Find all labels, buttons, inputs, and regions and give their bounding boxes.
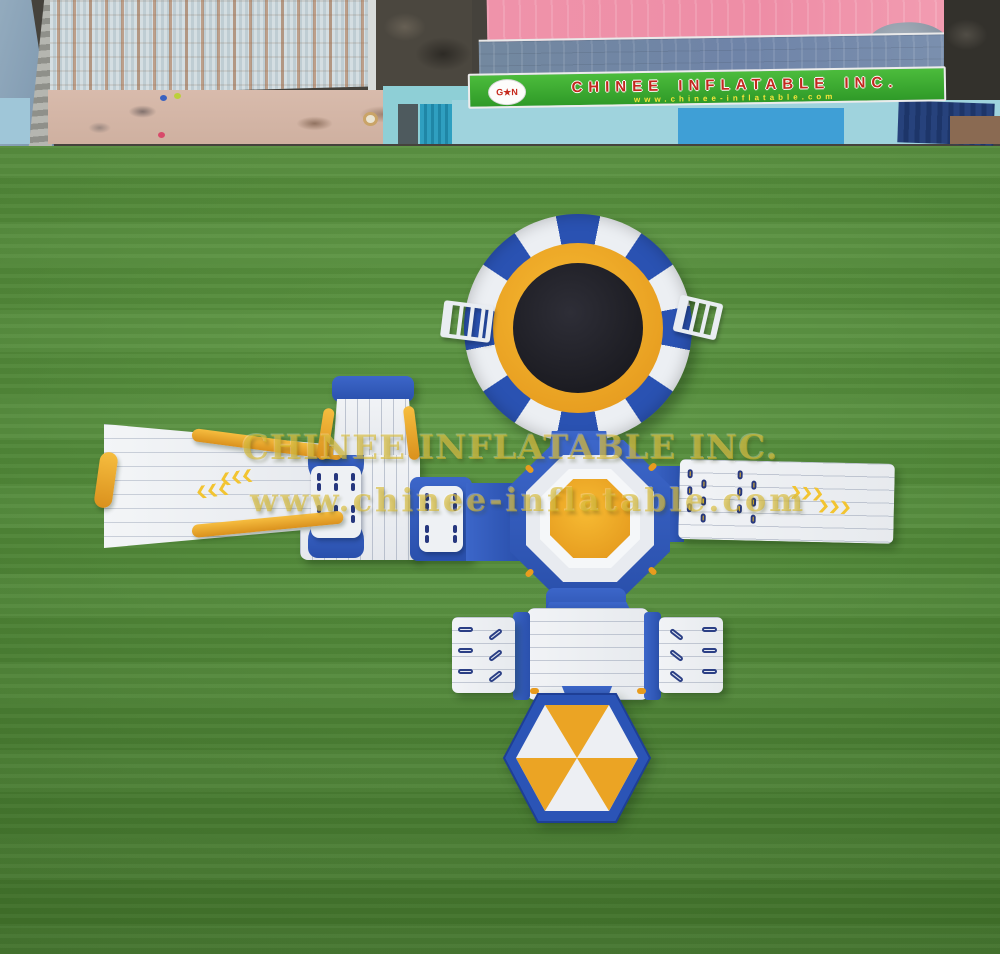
- grip-slot: [702, 627, 717, 632]
- grip-slot: [458, 648, 473, 653]
- slot-column: [669, 632, 684, 679]
- chevron-right-icon: [819, 499, 829, 513]
- wing-deck-left: [452, 617, 515, 693]
- boarding-ladder-left: [440, 300, 494, 343]
- hexagon-beachball-pad: [498, 690, 656, 826]
- platform-side-strip: [513, 612, 530, 700]
- grip-slot: [669, 649, 684, 662]
- tower-blue-cap: [332, 376, 414, 402]
- watermark-line2: www.chinee-inflatable.com: [250, 481, 806, 519]
- grommet: [425, 525, 429, 533]
- grip-slot: [702, 648, 717, 653]
- grip-slot: [488, 628, 503, 641]
- grommet: [317, 473, 321, 481]
- chevron-right-icon: [819, 499, 851, 514]
- grip-slot: [669, 670, 684, 683]
- chevron-left-icon: [220, 472, 231, 486]
- chevron-right-icon: [840, 501, 850, 515]
- chevron-left-icon: [231, 470, 242, 484]
- grommet: [738, 470, 743, 479]
- grommet: [453, 525, 457, 533]
- trampoline-jump-mat: [513, 263, 643, 393]
- grip-slot: [488, 670, 503, 683]
- watermark-line1: CHINEE INFLATABLE INC.: [242, 428, 779, 468]
- screenshot-root: G★N CHINEE INFLATABLE INC. www.chinee-in…: [0, 0, 1000, 954]
- grip-slot: [458, 669, 473, 674]
- grommet: [425, 535, 429, 543]
- slot-column: [458, 627, 473, 674]
- chevron-left-icon: [207, 483, 218, 497]
- chevron-left-icon: [196, 485, 207, 499]
- grip-slot: [702, 669, 717, 674]
- wing-deck-right: [659, 617, 723, 693]
- water-trampoline: [464, 214, 692, 442]
- grommet: [688, 469, 693, 478]
- grommet: [453, 535, 457, 543]
- grip-slot: [488, 649, 503, 662]
- slot-column: [702, 627, 717, 674]
- corner-handle: [647, 566, 658, 577]
- grip-slot: [458, 627, 473, 632]
- grip-slot: [669, 628, 684, 641]
- grommet: [351, 473, 355, 481]
- slot-column: [488, 632, 503, 679]
- inflatable-water-park: [0, 0, 1000, 954]
- grommet: [334, 473, 338, 481]
- chevron-right-icon: [829, 500, 839, 514]
